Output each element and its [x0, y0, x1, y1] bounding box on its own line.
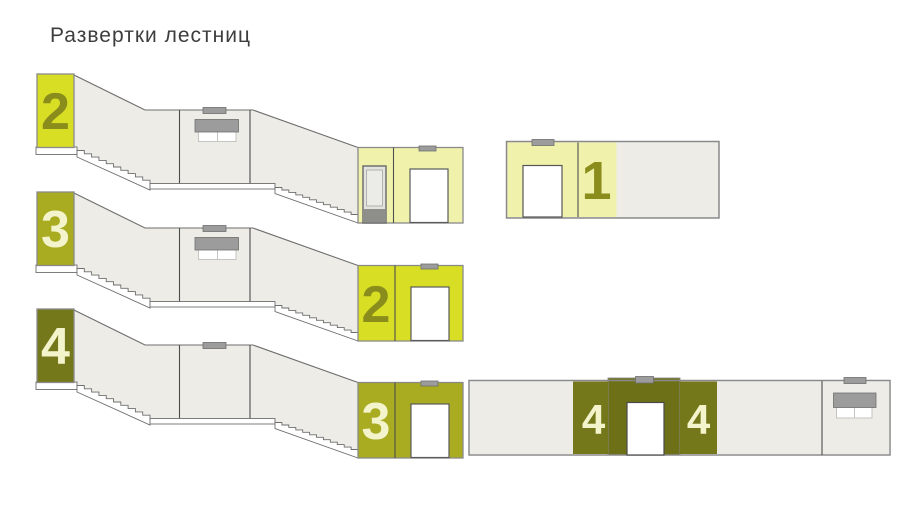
window-blind: [834, 393, 877, 408]
floor-number: 4: [582, 396, 606, 443]
floor-number: 4: [687, 396, 711, 443]
landing-slab: [150, 302, 275, 308]
level-number: 2: [41, 83, 70, 141]
landing-number: 2: [362, 276, 391, 334]
stair-elevations-drawing: Развертки лестниц 2: [0, 0, 900, 506]
floor-number: 1: [581, 151, 611, 211]
landing-number: 3: [362, 393, 391, 451]
door-threshold: [364, 209, 385, 223]
elevations-svg: 2: [0, 0, 900, 506]
door-opening: [411, 404, 449, 458]
roof-vent-icon: [203, 226, 226, 232]
door-opening: [627, 403, 664, 456]
door-glass: [367, 170, 383, 206]
landing-panel-floor2: 2: [358, 264, 463, 341]
roof-vent-icon: [419, 146, 436, 151]
stair-window: [195, 120, 239, 142]
roof-vent-icon: [421, 381, 438, 386]
level-number: 4: [41, 318, 70, 376]
roof-vent-icon: [636, 377, 654, 384]
facade-window: [834, 393, 877, 418]
wall-zone-left: [470, 382, 573, 455]
roof-vent-icon: [844, 378, 866, 384]
stair-window: [195, 238, 239, 260]
roof-vent-icon: [203, 108, 226, 114]
stair-run-level2: 2: [36, 74, 463, 223]
roof-vent-icon: [532, 140, 554, 146]
elevation-floor1: 1: [507, 140, 720, 219]
door-opening: [410, 169, 448, 223]
roof-vent-icon: [421, 264, 438, 269]
level-number: 3: [41, 201, 70, 259]
door-opening: [523, 166, 562, 218]
entrance-panel-floor2: [358, 146, 463, 223]
roof-vent-icon: [203, 343, 226, 349]
landing-panel-floor3: 3: [358, 381, 463, 458]
window-blind: [195, 238, 239, 251]
landing-slab: [150, 184, 275, 190]
landing-slab: [150, 419, 275, 425]
door-opening: [411, 287, 449, 341]
window-blind: [195, 120, 239, 133]
elevation-floor4: 4 4: [469, 377, 890, 456]
